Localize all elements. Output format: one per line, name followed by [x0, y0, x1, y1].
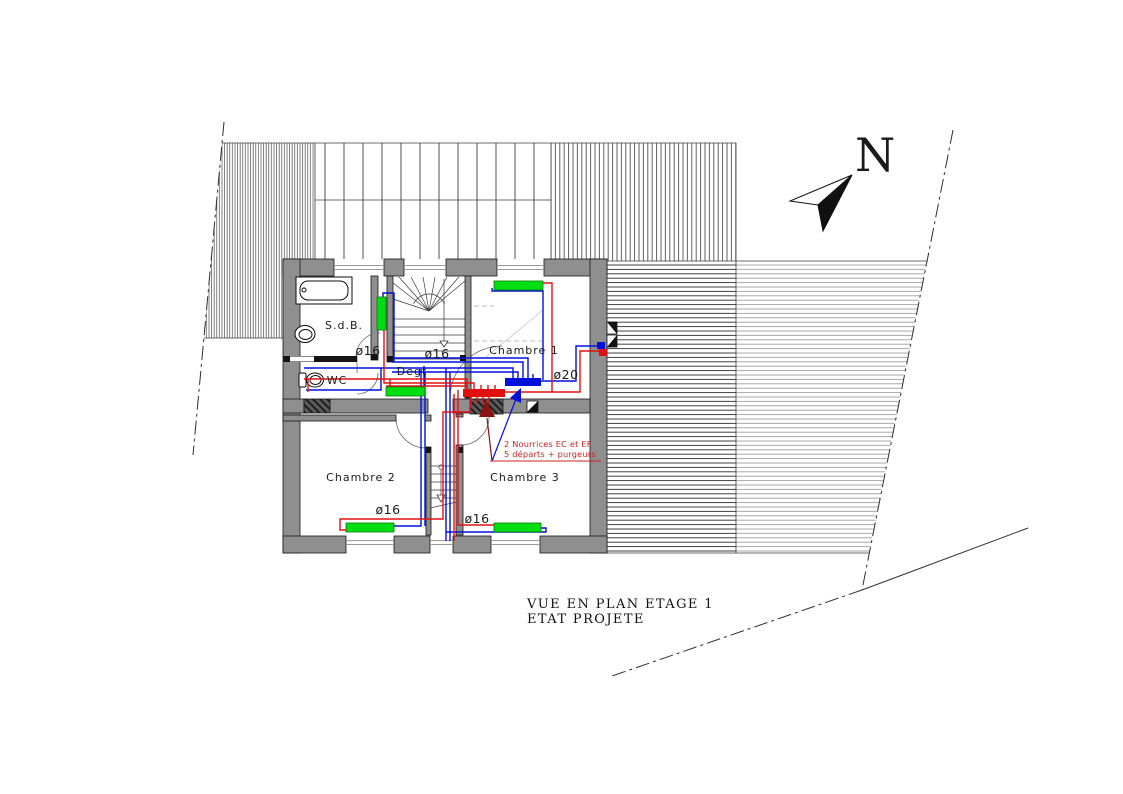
wall-hatched-segment-west	[304, 399, 330, 413]
floor-plan-page: S.d.B. WC Degt Chambre 1 Chambre 2 Chamb…	[0, 0, 1123, 794]
wall-east	[590, 259, 607, 553]
bathtub-icon	[296, 277, 352, 304]
partition-door-gap	[290, 357, 314, 362]
pipe-connection-blue	[597, 342, 605, 349]
pipe-label-stairs: ø16	[424, 346, 449, 361]
north-label: N	[855, 128, 895, 182]
wall-bottom-4	[540, 536, 607, 553]
radiator-chambre3	[494, 523, 541, 532]
boundary-northeast	[862, 528, 1028, 590]
radiator-chambre1	[494, 281, 543, 290]
wall-marker-mid	[527, 401, 538, 412]
title-block: VUE EN PLAN ETAGE 1 ETAT PROJETE	[526, 597, 714, 627]
manifold-cold	[505, 378, 541, 386]
toilet-icon	[299, 373, 324, 387]
room-label-chambre1: Chambre 1	[489, 344, 559, 357]
wall-mid-band-2	[330, 399, 428, 413]
pipe-label-chambre2: ø16	[375, 502, 400, 517]
pipe-label-chambre3: ø16	[464, 511, 489, 526]
title-line2: ETAT PROJETE	[527, 612, 645, 627]
radiator-stairwell	[377, 297, 386, 330]
annotation-line2: 5 départs + purgeurs	[504, 449, 596, 459]
annotation-line1: 2 Nourrices EC et EF	[504, 439, 592, 449]
wall-chambre2-north	[283, 415, 396, 421]
floor-plan-drawing: S.d.B. WC Degt Chambre 1 Chambre 2 Chamb…	[0, 0, 1123, 794]
wall-stairs2-west	[426, 447, 431, 535]
roof-hatch-right	[551, 143, 736, 261]
sink-icon	[295, 326, 315, 343]
wall-bottom-2	[394, 536, 430, 553]
pipe-label-chambre1: ø20	[553, 367, 578, 382]
wall-mid-band-1	[283, 399, 304, 413]
room-label-chambre3: Chambre 3	[490, 471, 560, 484]
roof-hatch-middle	[315, 143, 551, 261]
wall-bottom-1	[283, 536, 346, 553]
terrain-hatch-east-inner	[607, 261, 736, 553]
pipe-label-sdb: ø16	[355, 343, 380, 358]
manifold-hot	[463, 389, 505, 397]
pipe-connection-red	[599, 349, 607, 356]
wall-top-3	[446, 259, 497, 276]
north-arrow: N	[790, 128, 895, 231]
radiator-chambre2	[346, 523, 394, 532]
wall-stairs-west	[387, 276, 393, 362]
wall-bottom-3	[453, 536, 491, 553]
room-label-chambre2: Chambre 2	[326, 471, 396, 484]
room-label-sdb: S.d.B.	[325, 319, 363, 332]
wall-chambre2-door-post	[425, 415, 431, 421]
wall-chambre3-west	[456, 445, 463, 535]
room-label-wc: WC	[327, 374, 348, 387]
radiator-degt	[386, 387, 425, 396]
room-label-degt: Degt	[397, 365, 428, 378]
wall-chambre3-west-stub	[456, 414, 463, 417]
title-line1: VUE EN PLAN ETAGE 1	[526, 597, 714, 612]
wall-top-2	[384, 259, 404, 276]
